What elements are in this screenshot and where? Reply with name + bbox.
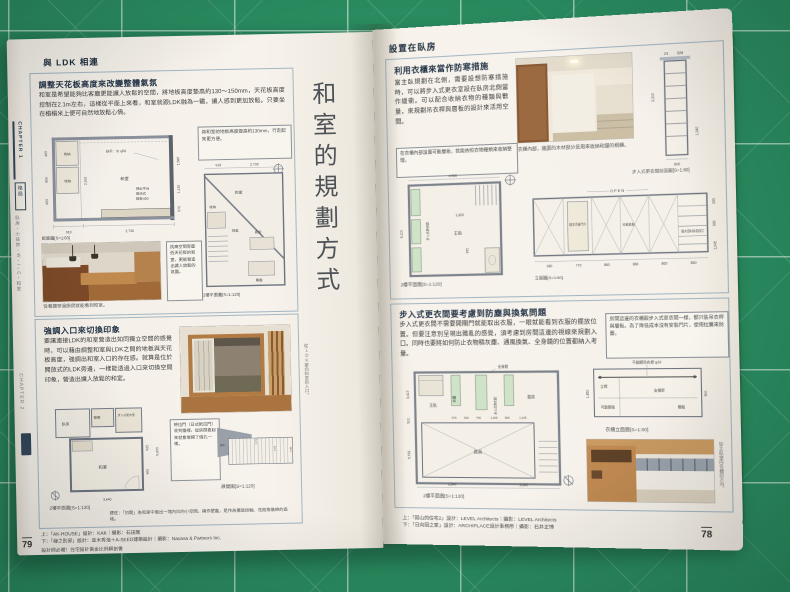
photo-vignette — [0, 0, 790, 592]
photo-of-open-book: CHAPTER 1 格局 臥房・小孩房・W・I・C・和室 CHAPTER 2 與… — [0, 0, 790, 592]
